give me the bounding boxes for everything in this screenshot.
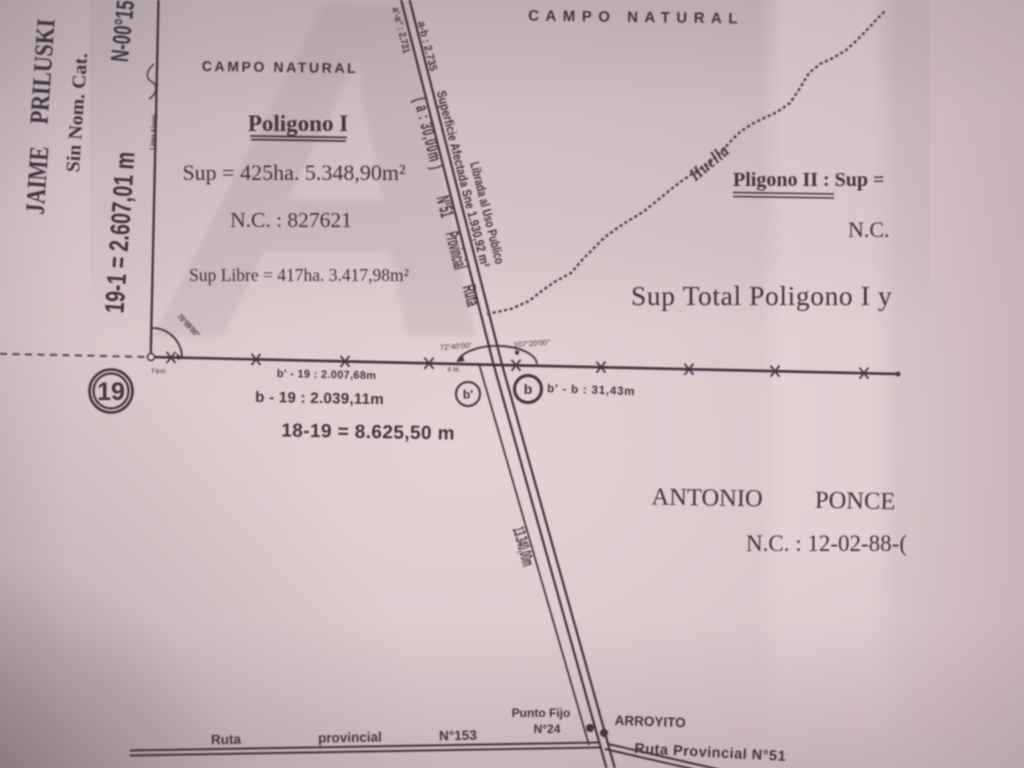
- svg-text:19: 19: [97, 378, 125, 406]
- svg-text:b - 19 : 2.039,11m: b - 19 : 2.039,11m: [255, 389, 384, 408]
- svg-text:N°24: N°24: [534, 722, 561, 736]
- svg-text:6 M.: 6 M.: [448, 367, 461, 374]
- svg-text:N.C. : 827621: N.C. : 827621: [230, 208, 352, 232]
- svg-text:CAMPO NATURAL: CAMPO NATURAL: [528, 7, 744, 27]
- svg-text:JAIME: JAIME: [20, 146, 55, 216]
- svg-text:18-19 = 8.625,50 m: 18-19 = 8.625,50 m: [281, 420, 455, 444]
- svg-text:ARROYITO: ARROYITO: [614, 713, 685, 730]
- svg-text:N.C. : 12-02-88-(: N.C. : 12-02-88-(: [746, 531, 907, 556]
- svg-text:Poligono I: Poligono I: [248, 111, 348, 136]
- svg-text:Sup Libre = 417ha. 3.417,98m²: Sup Libre = 417ha. 3.417,98m²: [189, 265, 409, 285]
- svg-text:ANTONIO: ANTONIO: [651, 484, 763, 513]
- svg-text:provincial: provincial: [318, 729, 382, 745]
- svg-text:Fijos: Fijos: [152, 368, 166, 375]
- svg-text:N°153: N°153: [439, 728, 477, 744]
- svg-text:PONCE: PONCE: [815, 487, 896, 515]
- svg-text:b: b: [524, 381, 533, 397]
- svg-text:Punto Fijo: Punto Fijo: [512, 706, 571, 720]
- svg-text:Sup Total Poligono I y: Sup Total Poligono I y: [631, 280, 892, 311]
- svg-text:b': b': [463, 388, 473, 402]
- svg-text:Pligono II : Sup =: Pligono II : Sup =: [733, 169, 884, 191]
- svg-text:Ruta: Ruta: [211, 732, 242, 748]
- svg-text:N.C.: N.C.: [848, 217, 890, 242]
- svg-text:CAMPO NATURAL: CAMPO NATURAL: [202, 58, 359, 76]
- svg-text:Sup = 425ha. 5.348,90m²: Sup = 425ha. 5.348,90m²: [182, 160, 406, 185]
- svg-text:b' - 19 : 2.007,68m: b' - 19 : 2.007,68m: [277, 368, 377, 382]
